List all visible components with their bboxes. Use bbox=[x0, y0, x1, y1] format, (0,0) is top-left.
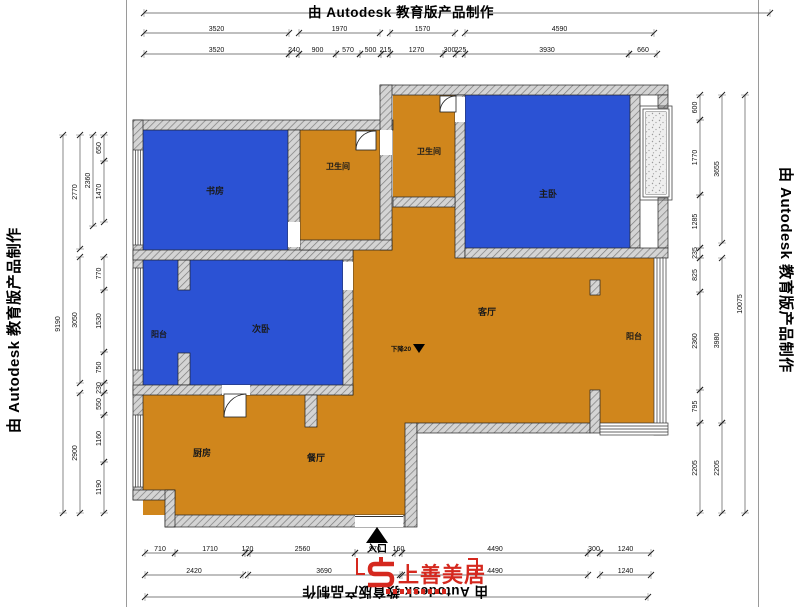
dim-label: 3655 bbox=[714, 161, 721, 177]
dim-label: 500 bbox=[365, 47, 377, 54]
dim-label: 1970 bbox=[332, 26, 348, 33]
room-label-study: 书房 bbox=[206, 185, 224, 196]
balcony-left-window bbox=[133, 268, 143, 370]
entrance-arrow-icon bbox=[366, 527, 388, 543]
dim-label: 1285 bbox=[692, 214, 699, 230]
room-label-dining: 餐厅 bbox=[306, 452, 325, 463]
dim-label: 215 bbox=[380, 47, 392, 54]
logo-bracket-left-icon bbox=[356, 558, 365, 575]
room-label-balcony-right: 阳台 bbox=[626, 331, 642, 341]
bath-top-door-opening bbox=[380, 130, 392, 155]
dim-label: 2420 bbox=[186, 568, 202, 575]
dim-label: 1160 bbox=[96, 431, 103, 446]
dim-label: 2560 bbox=[295, 546, 311, 553]
study-window bbox=[133, 150, 143, 245]
dim-label: 2770 bbox=[72, 184, 79, 200]
room-label-bedroom-second: 次卧 bbox=[252, 323, 270, 334]
dim-label: 660 bbox=[637, 47, 649, 54]
watermark-left: 由 Autodesk 教育版产品制作 bbox=[3, 227, 24, 433]
dim-label: 750 bbox=[96, 362, 103, 374]
logo-tagline-strip bbox=[386, 589, 448, 594]
logo-bracket-right-icon bbox=[468, 558, 478, 575]
dim-label: 710 bbox=[154, 546, 166, 553]
bedroom-door-opening bbox=[343, 262, 353, 290]
room-label-master: 主卧 bbox=[539, 188, 557, 199]
watermark-right: 由 Autodesk 教育版产品制作 bbox=[776, 167, 797, 373]
floor-drop-label: 下降20 bbox=[391, 344, 412, 353]
dim-label: 3930 bbox=[539, 47, 555, 54]
floor-plan-svg: 书房 卫生间 卫生间 主卧 阳台 次卧 客厅 阳台 厨房 餐厅 下降20 入口 … bbox=[0, 0, 800, 607]
master-floor bbox=[465, 95, 630, 248]
dim-label: 2360 bbox=[85, 173, 92, 189]
study-door-opening bbox=[288, 222, 300, 247]
dim-label: 1270 bbox=[409, 47, 425, 54]
dim-label: 2205 bbox=[714, 460, 721, 476]
dim-label: 2900 bbox=[72, 445, 79, 461]
dim-label: 3050 bbox=[72, 312, 79, 328]
dim-label: 3980 bbox=[714, 333, 721, 349]
room-label-balcony-left: 阳台 bbox=[151, 329, 167, 339]
dim-label: 795 bbox=[692, 401, 699, 413]
bedroom-balcony-floor bbox=[143, 260, 343, 385]
dim-label: 1530 bbox=[96, 313, 103, 329]
dim-label: 3690 bbox=[316, 568, 332, 575]
dim-label: 3520 bbox=[209, 26, 225, 33]
dim-label: 900 bbox=[312, 47, 324, 54]
kitchen-window bbox=[133, 415, 143, 487]
dim-label: 1470 bbox=[96, 184, 103, 200]
dim-label: 1240 bbox=[618, 568, 634, 575]
dim-label: 1190 bbox=[96, 480, 103, 495]
kitchen-door-leaf bbox=[224, 394, 246, 417]
dim-label: 600 bbox=[692, 102, 699, 114]
room-label-kitchen: 厨房 bbox=[193, 447, 211, 458]
bath-mid-door-leaf bbox=[440, 96, 456, 112]
dim-label: 3520 bbox=[209, 47, 225, 54]
dim-label: 970 bbox=[369, 546, 381, 553]
room-label-bath-top: 卫生间 bbox=[326, 161, 350, 171]
dim-label: 770 bbox=[96, 268, 103, 280]
dim-label: 4490 bbox=[487, 546, 503, 553]
dim-label: 1570 bbox=[415, 26, 431, 33]
kitchen-dining-floor bbox=[143, 395, 405, 515]
dim-label: 225 bbox=[455, 47, 467, 54]
dim-label: 4590 bbox=[552, 26, 568, 33]
dim-label: 10075 bbox=[737, 294, 744, 314]
bath-mid-door-opening bbox=[455, 97, 465, 122]
bath-top-door-leaf bbox=[356, 131, 376, 150]
dim-label: 9190 bbox=[55, 316, 62, 332]
cad-drawing-stage: 书房 卫生间 卫生间 主卧 阳台 次卧 客厅 阳台 厨房 餐厅 下降20 入口 … bbox=[0, 0, 800, 607]
dim-label: 650 bbox=[96, 142, 103, 154]
kitchen-door-opening bbox=[222, 385, 250, 395]
dim-label: 230 bbox=[96, 382, 103, 394]
dim-label: 240 bbox=[288, 47, 300, 54]
dim-label: 300 bbox=[588, 546, 600, 553]
dim-label: 2360 bbox=[692, 333, 699, 349]
watermark-top: 由 Autodesk 教育版产品制作 bbox=[308, 1, 494, 21]
dim-label: 1240 bbox=[618, 546, 634, 553]
room-label-living: 客厅 bbox=[477, 306, 496, 317]
room-label-bath-mid: 卫生间 bbox=[417, 146, 441, 156]
dim-label: 2205 bbox=[692, 460, 699, 476]
dim-label: 550 bbox=[96, 398, 103, 410]
brand-logo: 上善美居 bbox=[356, 556, 478, 602]
dim-label: 1710 bbox=[202, 546, 218, 553]
dim-label: 235 bbox=[692, 247, 699, 259]
dim-label: 1770 bbox=[692, 150, 699, 166]
dim-label: 4490 bbox=[487, 568, 503, 575]
dim-label: 570 bbox=[342, 47, 354, 54]
dim-label: 825 bbox=[692, 269, 699, 281]
